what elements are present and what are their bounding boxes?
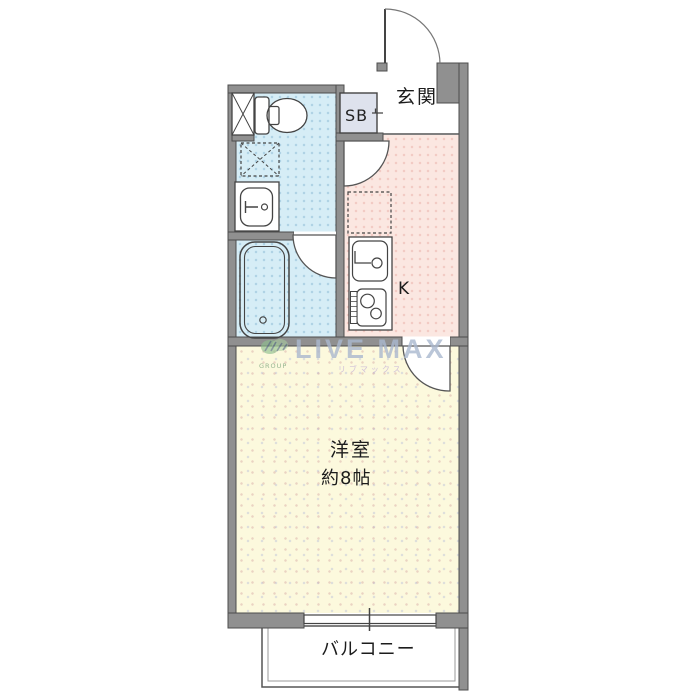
room-door: [403, 337, 450, 392]
label-main-room-size: 約8帖: [321, 470, 371, 488]
label-shoe-box: SB: [345, 108, 368, 124]
wash-basin: [235, 182, 279, 231]
kitchen-sink: [353, 241, 388, 281]
bathroom-door: [293, 232, 336, 279]
bathtub: [240, 242, 289, 338]
kitchen-counter: [349, 237, 392, 330]
pipe-shaft: [232, 93, 254, 135]
refrigerator-space: [348, 192, 391, 233]
washing-machine-pan: [241, 143, 279, 176]
floor-plan: GROUP LIVE MAX リブマックス 玄関 SB K 洋室 約8帖 バルコ…: [0, 0, 700, 700]
gas-stove: [351, 289, 387, 326]
toilet: [255, 97, 307, 134]
label-kitchen: K: [398, 281, 409, 298]
floor-plan-drawing: [0, 0, 700, 700]
entrance-door: [385, 9, 440, 64]
label-main-room: 洋室: [330, 441, 372, 460]
label-genkan: 玄関: [396, 88, 438, 107]
label-balcony: バルコニー: [321, 641, 416, 659]
kitchen-door: [344, 141, 389, 186]
